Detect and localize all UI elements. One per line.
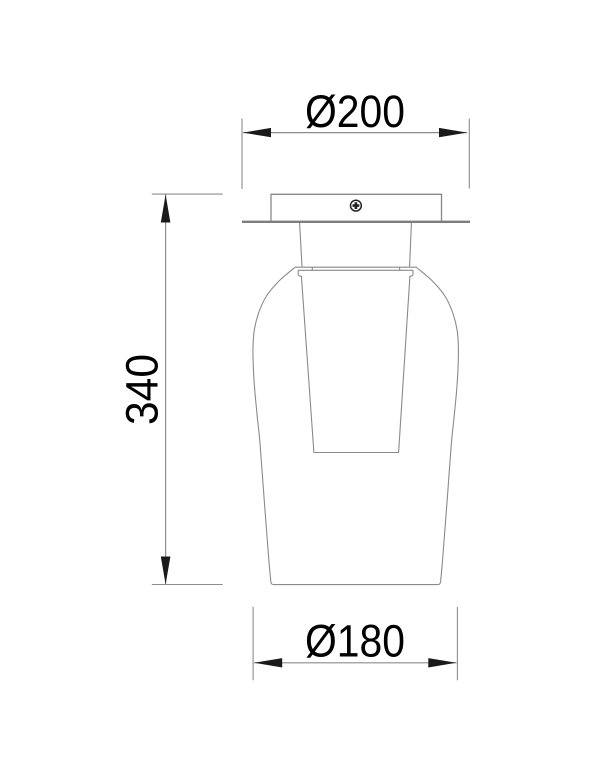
svg-text:Ø200: Ø200 [305,86,405,137]
svg-text:Ø180: Ø180 [305,616,405,667]
svg-text:340: 340 [117,354,168,425]
